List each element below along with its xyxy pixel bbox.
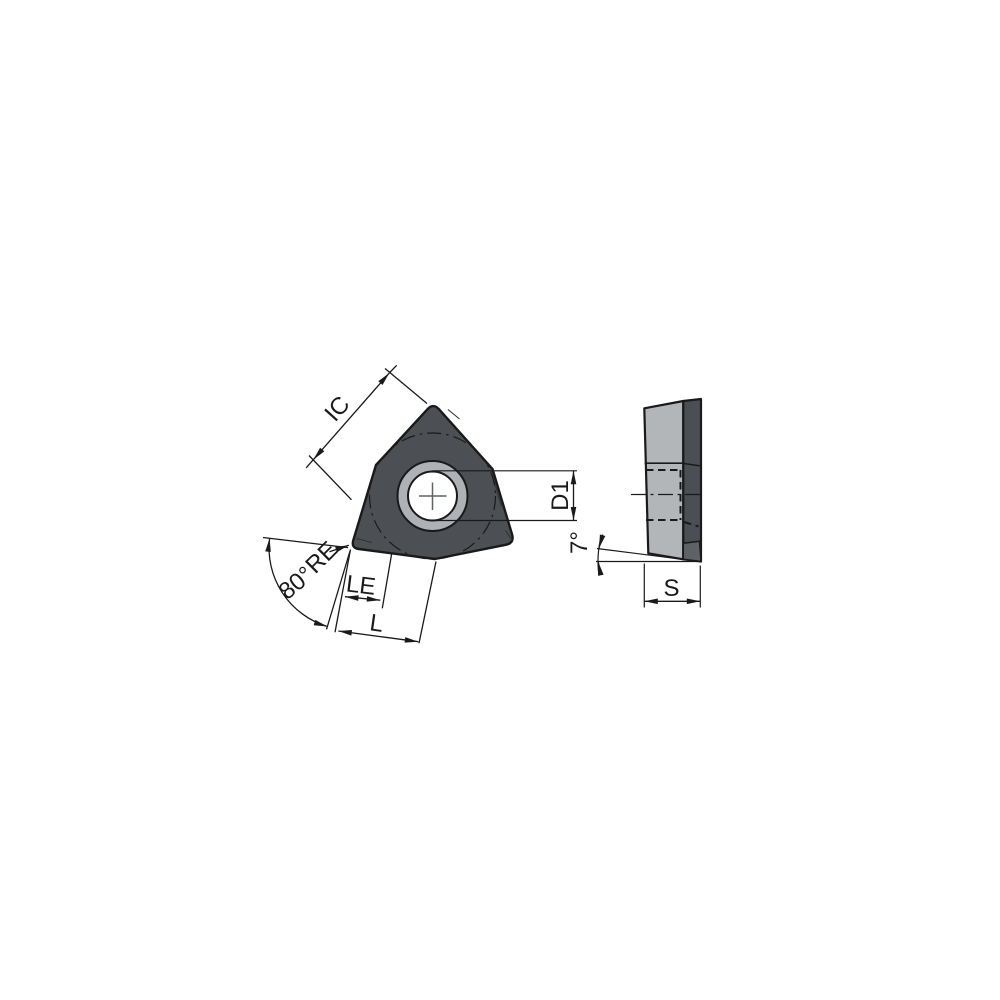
label-l: L [368, 609, 385, 638]
label-le: LE [345, 570, 377, 600]
page: IC D1 RE 80° LE L [0, 0, 1000, 1000]
side-edge-bottom-facet [683, 541, 701, 561]
corner-angle-ray-upper [263, 538, 348, 548]
ic-dimension-line [313, 373, 389, 460]
side-view: 7° S [566, 399, 701, 608]
side-face [644, 401, 683, 559]
le-extension-line-middle [382, 554, 391, 609]
label-clearance-angle: 7° [566, 531, 593, 554]
ic-extension-line-bottom [309, 456, 352, 500]
ic-dimension-overshoot-bottom [306, 460, 313, 468]
insert-technical-drawing: IC D1 RE 80° LE L [0, 0, 1000, 1000]
side-edge-face [683, 399, 701, 562]
front-view: IC D1 RE 80° LE L [263, 365, 577, 643]
label-d1: D1 [547, 480, 574, 511]
ic-dimension-overshoot-top [389, 365, 396, 373]
ic-extension-line-top [385, 369, 427, 404]
label-s: S [663, 575, 679, 602]
facet-line-top-corner [448, 410, 460, 420]
label-ic: IC [319, 391, 355, 427]
l-extension-line-end [419, 562, 436, 644]
